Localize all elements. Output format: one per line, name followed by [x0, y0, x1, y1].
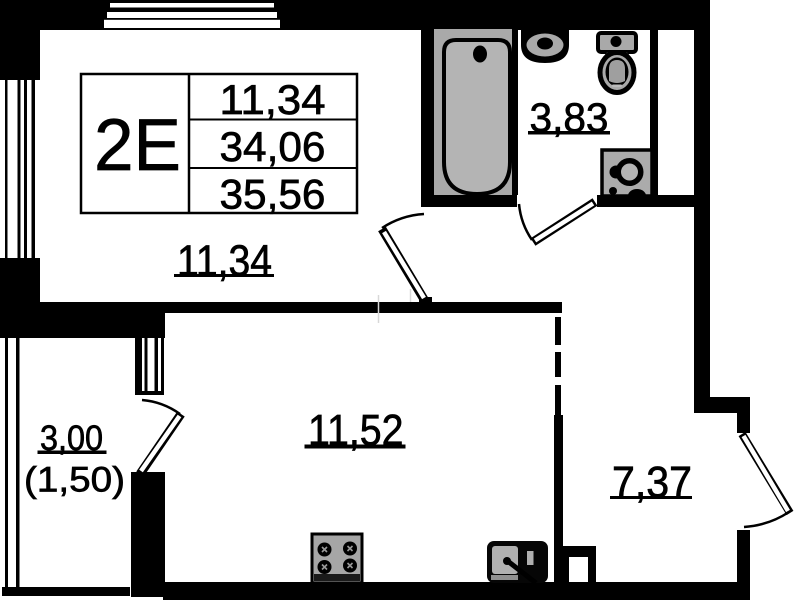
svg-text:2E: 2E [94, 105, 181, 186]
svg-text:35,56: 35,56 [220, 171, 326, 218]
svg-text:11,34: 11,34 [177, 237, 272, 286]
svg-text:34,06: 34,06 [220, 123, 326, 170]
svg-text:11,34: 11,34 [220, 76, 326, 123]
svg-text:7,37: 7,37 [612, 458, 692, 507]
svg-text:(1,50): (1,50) [24, 461, 125, 500]
